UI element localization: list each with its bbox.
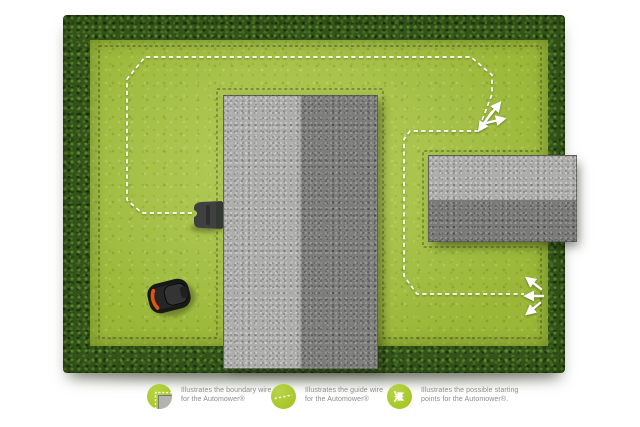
starting-points-icon	[387, 384, 412, 409]
legend-item-boundary-wire: Illustrates the boundary wire for the Au…	[147, 383, 271, 409]
garage-roof	[428, 155, 577, 242]
boundary-wire-icon	[147, 384, 172, 409]
legend: Illustrates the boundary wire for the Au…	[0, 383, 640, 423]
legend-text: Illustrates the possible starting points…	[421, 383, 518, 404]
main-house-roof	[223, 95, 378, 369]
legend-line: points for the Automower®.	[421, 396, 518, 405]
roof-ridge-shading	[429, 156, 576, 241]
legend-line: Illustrates the guide wire	[305, 387, 383, 396]
automower-installation-illustration: Illustrates the boundary wire for the Au…	[0, 0, 640, 427]
legend-text: Illustrates the boundary wire for the Au…	[181, 383, 271, 404]
legend-line: Illustrates the possible starting	[421, 387, 518, 396]
legend-line: for the Automower®	[181, 396, 271, 405]
legend-item-starting-points: Illustrates the possible starting points…	[387, 383, 518, 409]
guide-wire-icon	[271, 384, 296, 409]
legend-item-guide-wire: Illustrates the guide wire for the Autom…	[271, 383, 383, 409]
legend-line: for the Automower®	[305, 396, 383, 405]
roof-ridge-shading	[224, 96, 377, 368]
legend-line: Illustrates the boundary wire	[181, 387, 271, 396]
legend-text: Illustrates the guide wire for the Autom…	[305, 383, 383, 404]
